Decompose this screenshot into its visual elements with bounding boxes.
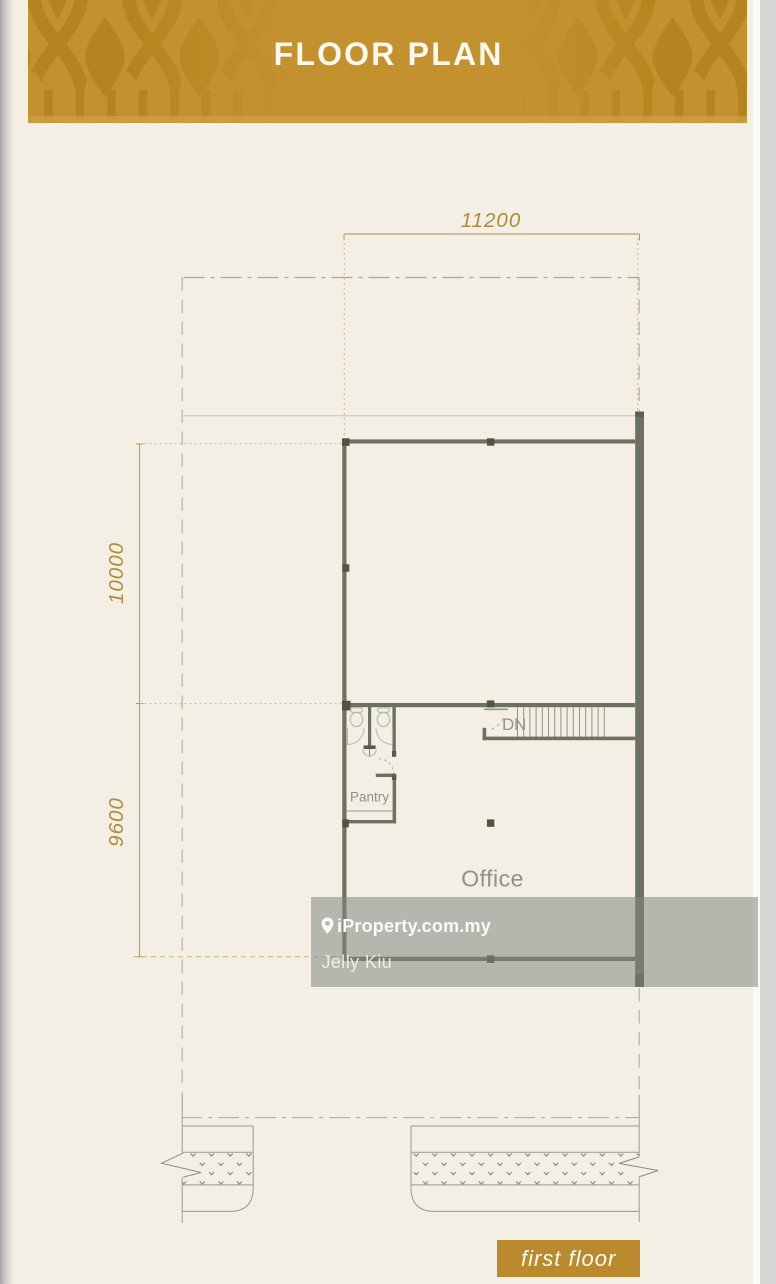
svg-text:9600: 9600	[105, 797, 128, 847]
svg-text:Office: Office	[461, 865, 524, 891]
svg-text:10000: 10000	[105, 542, 128, 604]
svg-text:DN: DN	[502, 715, 526, 734]
svg-text:Pantry: Pantry	[350, 790, 389, 805]
svg-text:11200: 11200	[461, 209, 521, 232]
